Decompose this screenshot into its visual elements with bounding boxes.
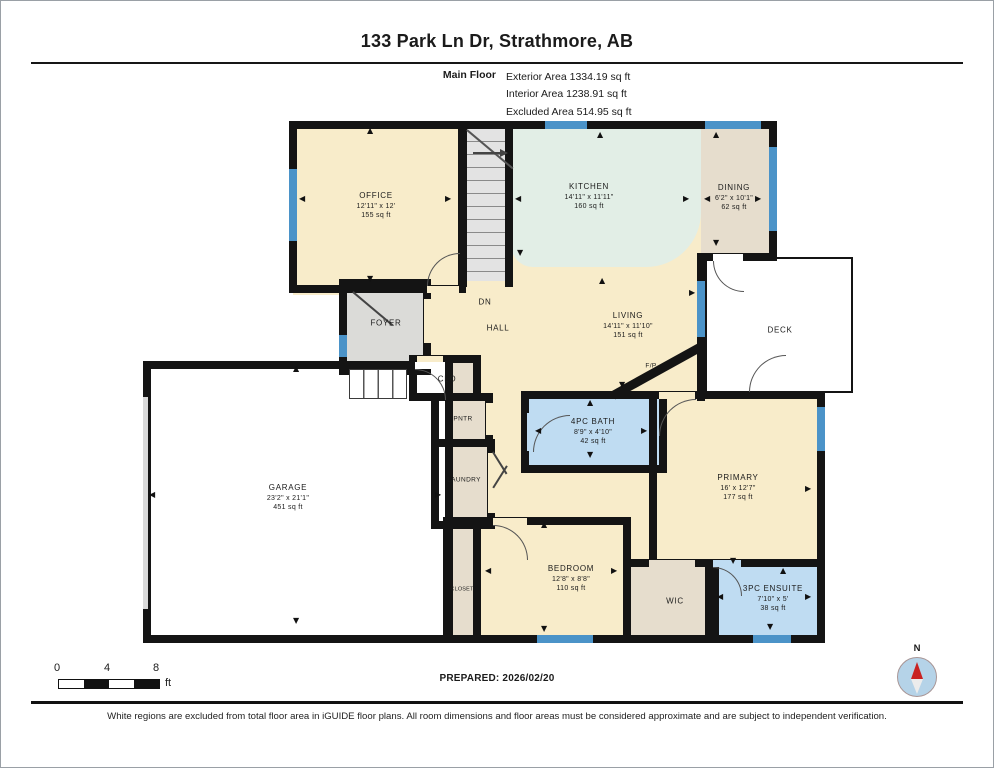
excluded-area: Excluded Area 514.95 sq ft (506, 104, 632, 121)
window-primary (817, 407, 825, 451)
window-dining-right (769, 147, 777, 231)
room-label-laundry: LAUNDRY (447, 477, 481, 486)
room-label-deck: DECK (767, 326, 792, 337)
room-label-primary: PRIMARY16' x 12'7"177 sq ft (717, 473, 758, 503)
room-fill-closet (451, 525, 473, 635)
room-label-living: LIVING14'11" x 11'10"151 sq ft (603, 311, 653, 341)
footer-rule (31, 701, 963, 704)
disclaimer-text: White regions are excluded from total fl… (1, 711, 993, 722)
floorplan-page: 133 Park Ln Dr, Strathmore, AB Main Floo… (0, 0, 994, 768)
compass-needle-south (911, 679, 923, 694)
room-label-kitchen: KITCHEN14'11" x 11'11"160 sq ft (564, 182, 613, 212)
stair-direction-line (473, 152, 501, 154)
room-label-office: OFFICE12'11" x 12'155 sq ft (357, 191, 396, 221)
compass-needle-north (911, 662, 923, 679)
window-living (697, 281, 705, 337)
window-office (289, 169, 297, 241)
room-label-pntr: PNTR (453, 416, 472, 425)
window-dining-top (705, 121, 761, 129)
stair-arrow-icon (500, 149, 508, 157)
room-label-ensuite: 3PC ENSUITE7'10" x 5'38 sq ft (743, 584, 803, 614)
exterior-area: Exterior Area 1334.19 sq ft (506, 69, 632, 86)
room-label-bedroom: BEDROOM12'8" x 8'8"110 sq ft (548, 564, 594, 594)
window-kitchen (545, 121, 587, 129)
window-ensuite (753, 635, 791, 643)
stairs-dn-label: DN (479, 298, 492, 309)
room-label-closet: CLOSET (450, 586, 473, 593)
room-label-wic: WIC (666, 597, 684, 608)
room-label-foyer: FOYER (370, 319, 401, 330)
fireplace-label: F/P (645, 363, 656, 372)
room-label-dining: DINING6'2" x 10'1"62 sq ft (715, 183, 753, 213)
room-label-bath: 4PC BATH8'9" x 4'10"42 sq ft (571, 417, 615, 447)
entry-steps (349, 369, 407, 399)
door-wic-opening (649, 560, 695, 567)
floor-label: Main Floor (331, 69, 496, 81)
room-label-hall: HALL (487, 324, 510, 335)
page-title: 133 Park Ln Dr, Strathmore, AB (1, 31, 993, 52)
compass-north-label: N (907, 643, 927, 654)
window-bedroom (537, 635, 593, 643)
garage-door-strip (143, 397, 148, 609)
room-label-garage: GARAGE23'2" x 21'1"451 sq ft (267, 483, 309, 513)
interior-area: Interior Area 1238.91 sq ft (506, 86, 632, 103)
area-summary: Exterior Area 1334.19 sq ft Interior Are… (506, 69, 632, 121)
room-label-clo: CLO (438, 375, 457, 386)
prepared-date: PREPARED: 2026/02/20 (1, 673, 993, 684)
window-foyer (339, 335, 347, 357)
header-rule (31, 62, 963, 64)
